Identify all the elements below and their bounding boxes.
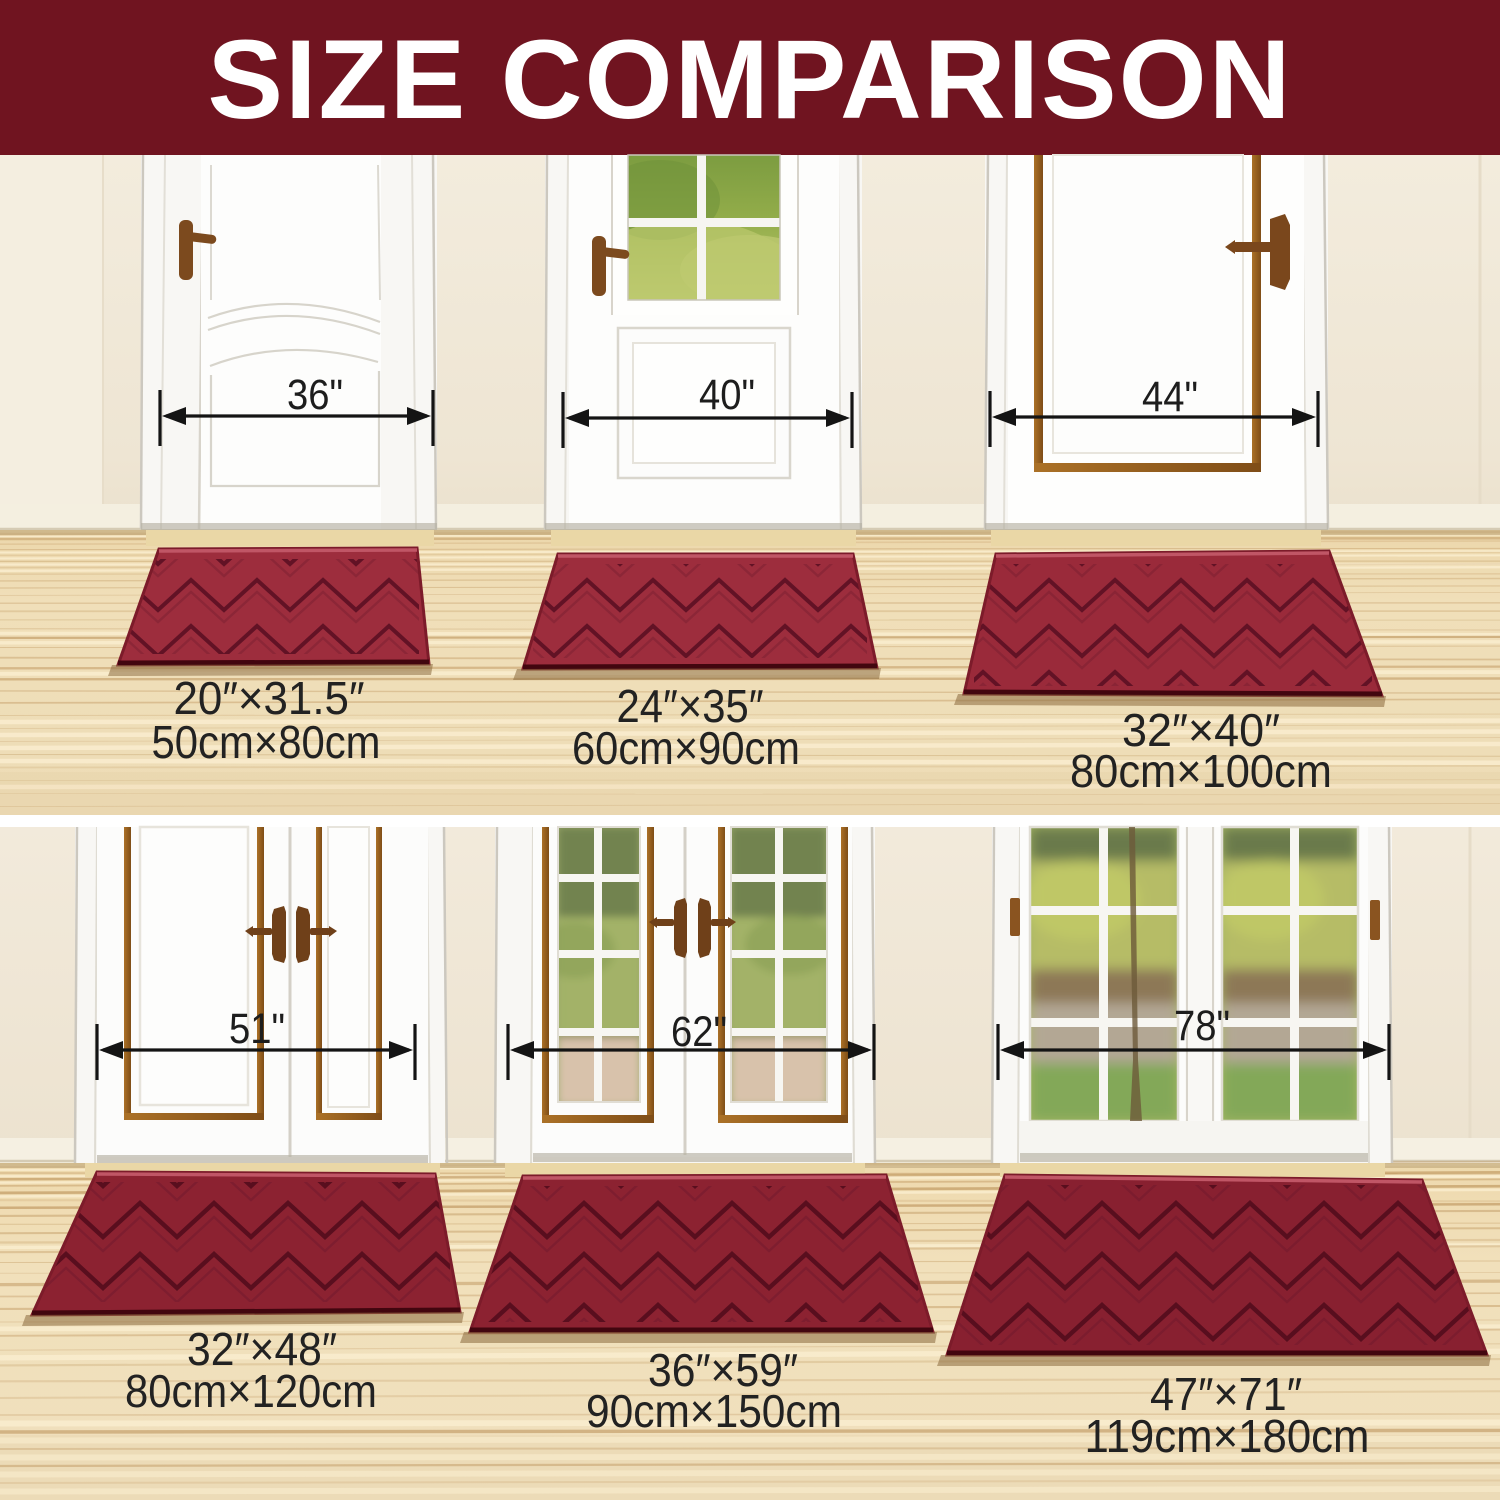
svg-text:51": 51"	[229, 1005, 285, 1053]
svg-text:SIZE COMPARISON: SIZE COMPARISON	[208, 17, 1293, 142]
svg-text:80cm×120cm: 80cm×120cm	[125, 1365, 377, 1417]
svg-text:62": 62"	[671, 1008, 727, 1056]
svg-text:78": 78"	[1174, 1002, 1230, 1050]
svg-text:44": 44"	[1142, 373, 1198, 421]
svg-text:90cm×150cm: 90cm×150cm	[586, 1385, 842, 1437]
svg-text:36": 36"	[287, 371, 343, 419]
svg-text:60cm×90cm: 60cm×90cm	[572, 722, 800, 774]
svg-text:119cm×180cm: 119cm×180cm	[1085, 1410, 1370, 1462]
svg-text:80cm×100cm: 80cm×100cm	[1070, 745, 1332, 797]
svg-text:40": 40"	[699, 371, 755, 419]
svg-text:50cm×80cm: 50cm×80cm	[152, 716, 381, 768]
